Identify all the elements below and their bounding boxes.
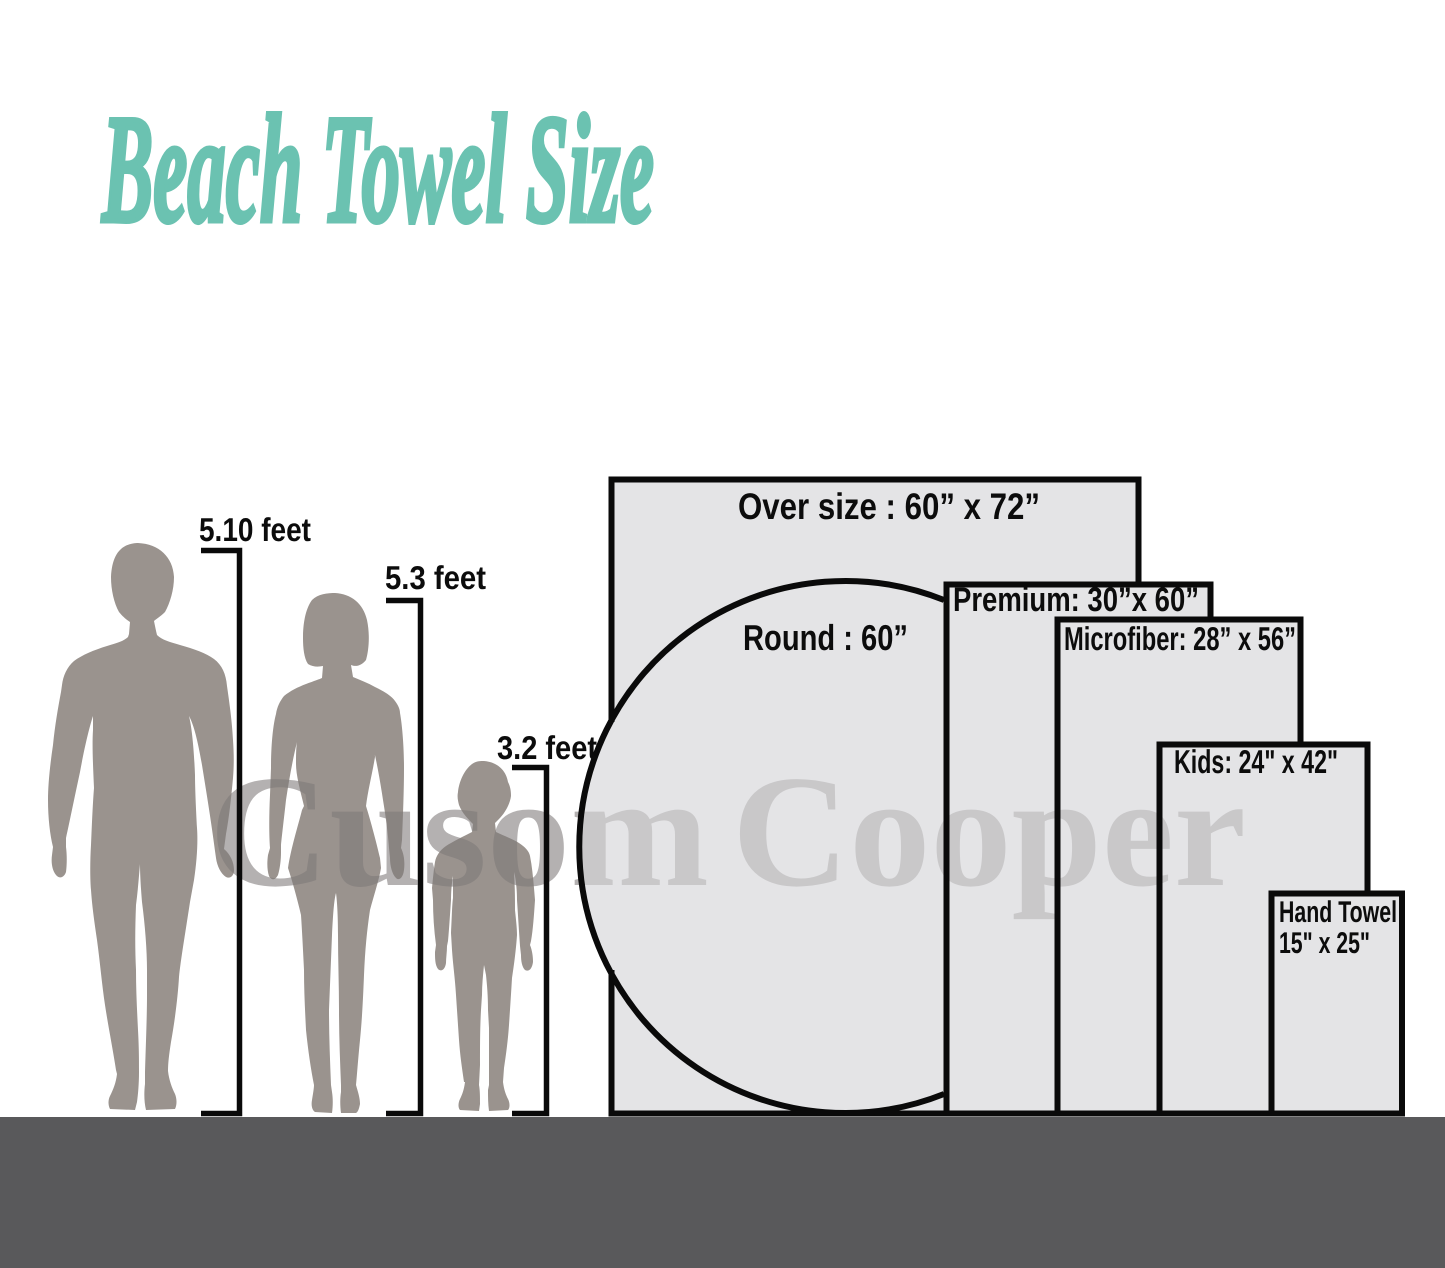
svg-text:5.10 feet: 5.10 feet	[199, 511, 311, 548]
svg-text:Microfiber: 28” x 56”: Microfiber: 28” x 56”	[1064, 620, 1296, 657]
svg-text:Over size : 60” x 72”: Over size : 60” x 72”	[738, 486, 1040, 527]
svg-text:Round : 60”: Round : 60”	[743, 617, 908, 658]
svg-text:15" x 25": 15" x 25"	[1279, 927, 1370, 960]
svg-text:Beach Towel Size: Beach Towel Size	[101, 83, 654, 255]
svg-text:Premium: 30”x 60”: Premium: 30”x 60”	[953, 581, 1199, 619]
svg-text:Hand Towel: Hand Towel	[1279, 896, 1397, 929]
svg-text:3.2 feet: 3.2 feet	[497, 729, 597, 766]
svg-text:5.3 feet: 5.3 feet	[385, 559, 486, 596]
svg-text:Kids: 24" x 42": Kids: 24" x 42"	[1174, 743, 1338, 780]
